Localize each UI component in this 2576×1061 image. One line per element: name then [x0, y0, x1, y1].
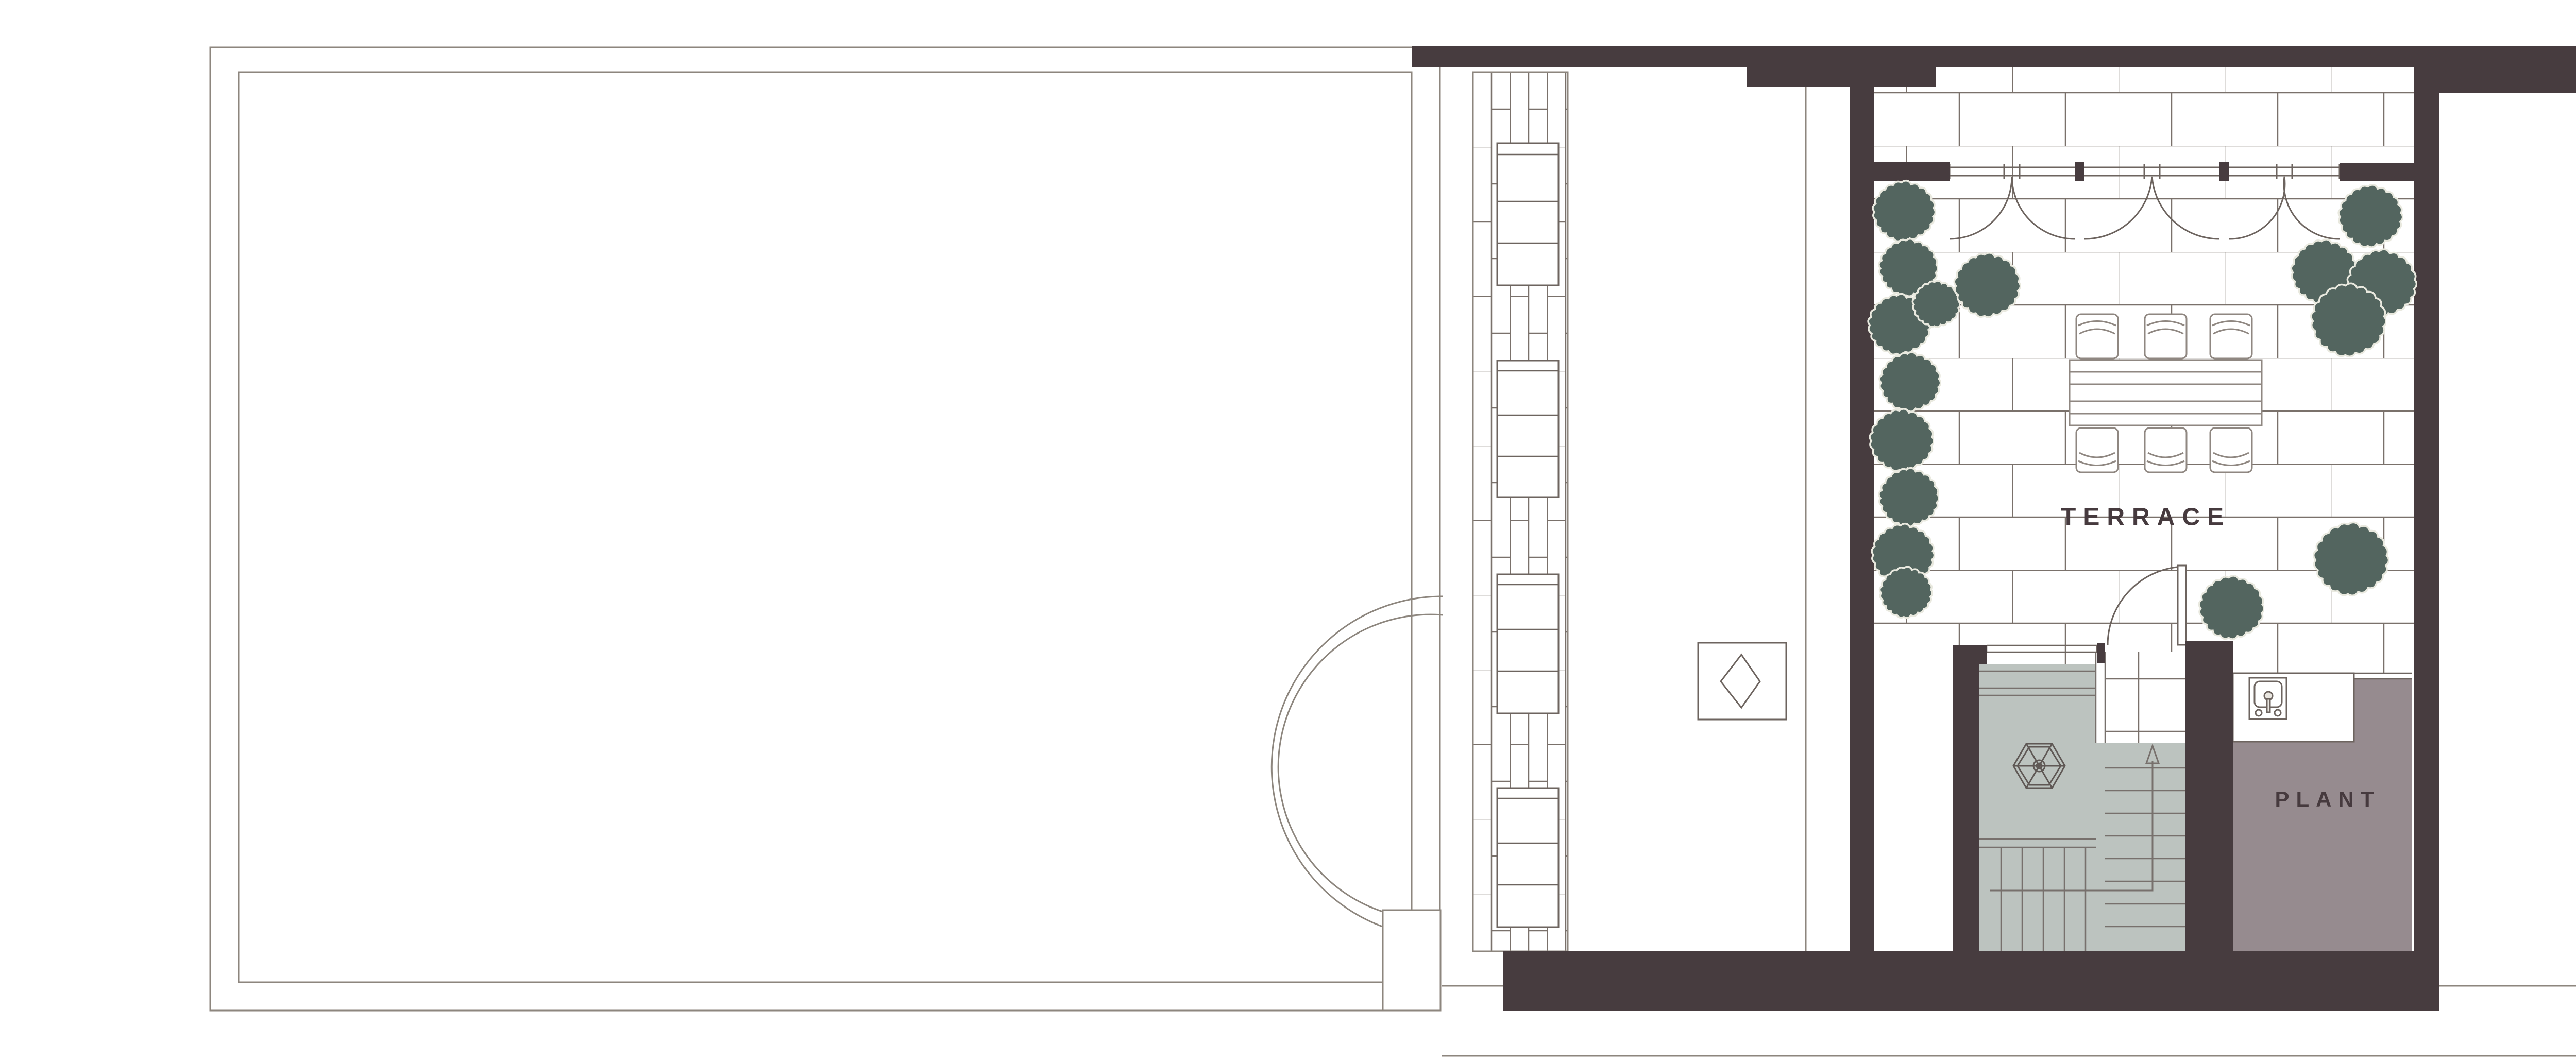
chair	[2210, 314, 2252, 358]
chair	[2145, 428, 2187, 472]
roof-bay-pier	[1383, 910, 1440, 1011]
dining-table	[2070, 360, 2262, 425]
diamond-rooflight-icon	[1698, 643, 1786, 720]
left-roof-outline	[210, 47, 1440, 1011]
plant-room-label: PLANT	[2275, 787, 2381, 812]
chair	[2145, 314, 2187, 358]
terrace-room-label: TERRACE	[2061, 503, 2231, 532]
roof-bay-arc	[1272, 596, 1443, 927]
chair	[2076, 314, 2118, 358]
stair-core	[1979, 652, 2185, 951]
right-roof-wing	[2439, 45, 2576, 986]
sink-icon	[2249, 678, 2286, 719]
plant-room	[2233, 673, 2412, 951]
chair	[2210, 428, 2252, 472]
chair	[2076, 428, 2118, 472]
floor-plan: TERRACE PLANT	[0, 0, 2576, 1061]
left-plank-strip	[1473, 72, 1568, 951]
